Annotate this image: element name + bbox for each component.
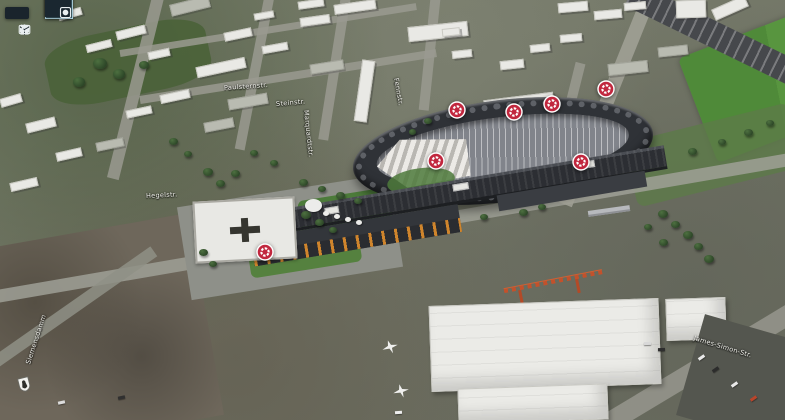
helipad-plaza [192, 196, 297, 263]
left-toolbar [5, 7, 29, 19]
street-label: Hegelstr. [146, 190, 178, 200]
round-pad [305, 199, 322, 212]
panorama-marker[interactable] [448, 101, 467, 120]
screenshot-button[interactable] [7, 13, 27, 31]
zoom-window-button[interactable] [45, 0, 71, 17]
street-label: Marquardtstr. [302, 110, 315, 158]
panorama-marker[interactable] [543, 95, 562, 114]
panorama-marker[interactable] [572, 153, 591, 172]
warehouse-hall [457, 383, 608, 420]
panorama-marker[interactable] [427, 152, 446, 171]
street-label: Paulsternstr. [224, 81, 269, 92]
map-viewport[interactable]: Paulsternstr.Steinstr.Marquardtstr.Fenns… [0, 0, 785, 420]
panorama-marker[interactable] [597, 80, 616, 99]
panorama-marker[interactable] [505, 103, 524, 122]
warehouse-hall [429, 298, 662, 392]
street-label: Fennstr. [392, 77, 405, 106]
street-label: Steinstr. [276, 97, 306, 108]
airplane-silhouette [380, 338, 400, 356]
airplane-silhouette [392, 382, 411, 399]
panorama-marker[interactable] [256, 243, 275, 262]
